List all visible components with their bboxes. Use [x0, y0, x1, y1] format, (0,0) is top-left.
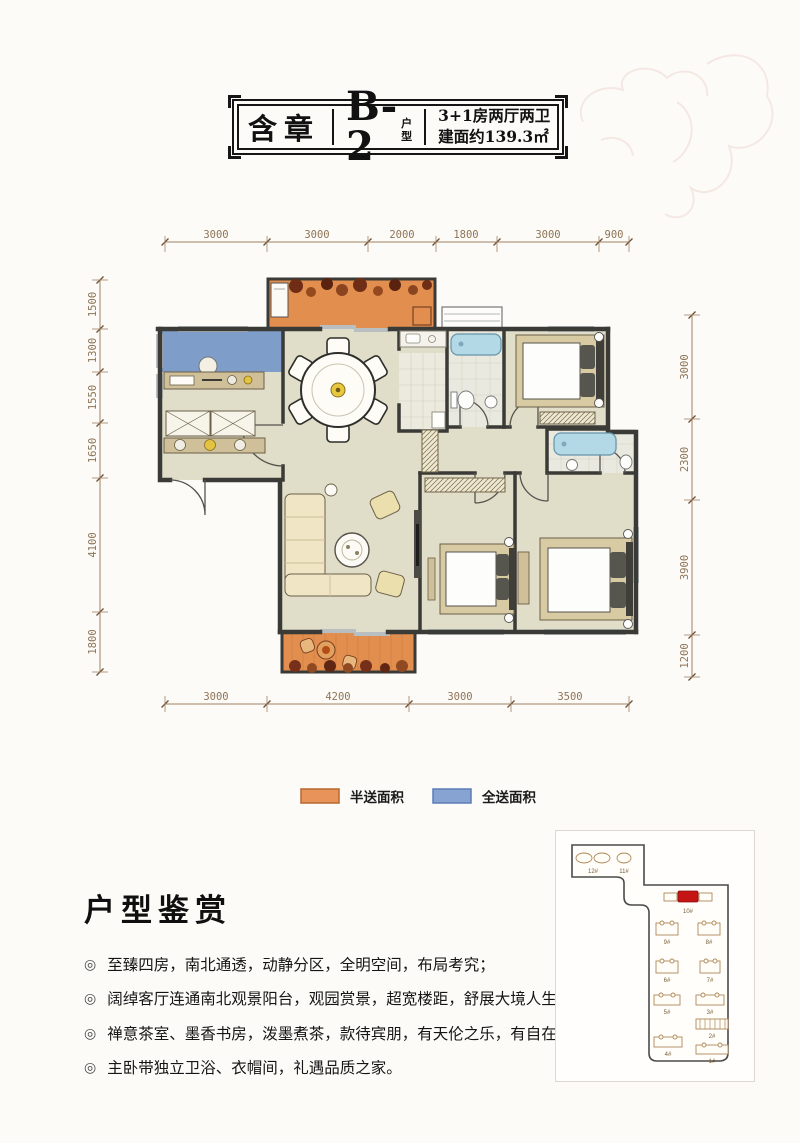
building-label: 12#: [588, 869, 599, 875]
legend-item-halfgift: 半送面积: [300, 786, 404, 806]
legend-label: 半送面积: [350, 786, 404, 806]
dim-bottom-3: 3000: [447, 691, 472, 703]
unit-specs: 3+1房两厅两卫 建面约139.3㎡: [438, 106, 550, 148]
title-block: 含章 B-2 户型 3+1房两厅两卫 建面约139.3㎡: [232, 99, 564, 155]
dim-top-5: 3000: [535, 229, 560, 241]
bullet-icon: ◎: [84, 990, 96, 1009]
dim-top-4: 1800: [453, 229, 478, 241]
selling-point: ◎ 阔绰客厅连通南北观景阳台，观园赏景，超宽楼距，舒展大境人生；: [84, 990, 584, 1009]
selling-points-list: ◎ 至臻四房，南北通透，动静分区，全明空间，布局考究； ◎ 阔绰客厅连通南北观景…: [84, 956, 584, 1079]
area-legend: 半送面积 全送面积: [300, 786, 536, 806]
frame-corner: [555, 146, 568, 159]
spec-line-2: 建面约139.3㎡: [438, 127, 550, 148]
building-label: 1#: [709, 1059, 716, 1065]
flyer-page: 含章 B-2 户型 3+1房两厅两卫 建面约139.3㎡: [0, 0, 800, 1143]
crane-watermark-decoration: [565, 12, 790, 227]
building-label: 6#: [664, 978, 671, 984]
unit-code-group: B-2 户型: [346, 87, 412, 167]
study-wardrobe: [166, 411, 255, 436]
building-label: 8#: [706, 940, 713, 946]
fullgift-swatch: [432, 788, 472, 804]
building-label: 11#: [619, 869, 629, 875]
floorplan-drawing: 3000 3000 2000 1800 3000 900 3000 4200 3…: [80, 222, 740, 732]
selling-point-text: 阔绰客厅连通南北观景阳台，观园赏景，超宽楼距，舒展大境人生；: [107, 990, 572, 1009]
building-label: 5#: [664, 1010, 671, 1016]
spec-line-1: 3+1房两厅两卫: [438, 106, 550, 127]
dim-left-3: 1550: [87, 385, 99, 410]
unit-suffix: 户型: [401, 118, 412, 143]
appreciation-section: 户型鉴赏 ◎ 至臻四房，南北通透，动静分区，全明空间，布局考究； ◎ 阔绰客厅连…: [84, 885, 584, 1094]
bullet-icon: ◎: [84, 1059, 96, 1078]
site-location-map: 12# 11# 10# 9# 8# 6# 7# 5# 3# 2# 4# 1#: [556, 831, 754, 1081]
building-label: 4#: [665, 1052, 672, 1058]
building-label: 3#: [707, 1010, 714, 1016]
study-fullgift-area: [161, 331, 283, 372]
divider: [424, 109, 426, 145]
selling-point-text: 禅意茶室、墨香书房，泼墨煮茶，款待宾朋，有天伦之乐，有自在生活；: [107, 1025, 603, 1044]
bedroom2-bed: [516, 333, 604, 408]
dim-left-1: 1500: [87, 292, 99, 317]
dim-right-2: 2300: [679, 447, 691, 472]
building-label: 9#: [664, 940, 671, 946]
dim-left-2: 1300: [87, 338, 99, 363]
unit-code: B-2: [346, 87, 397, 167]
dim-top-6: 900: [605, 229, 624, 241]
selling-point-text: 主卧带独立卫浴、衣帽间，礼遇品质之家。: [107, 1059, 402, 1078]
dim-bottom-2: 4200: [325, 691, 350, 703]
selling-point: ◎ 禅意茶室、墨香书房，泼墨煮茶，款待宾朋，有天伦之乐，有自在生活；: [84, 1025, 584, 1044]
selling-point-text: 至臻四房，南北通透，动静分区，全明空间，布局考究；: [107, 956, 495, 975]
section-heading: 户型鉴赏: [84, 885, 584, 930]
dim-top-2: 3000: [304, 229, 329, 241]
dim-bottom-1: 3000: [203, 691, 228, 703]
legend-item-fullgift: 全送面积: [432, 786, 536, 806]
dim-bottom-4: 3500: [557, 691, 582, 703]
bedroom3-bed: [428, 538, 515, 623]
building-label: 2#: [709, 1034, 716, 1040]
dim-right-1: 3000: [679, 354, 691, 379]
selling-point: ◎ 至臻四房，南北通透，动静分区，全明空间，布局考究；: [84, 956, 584, 975]
dim-left-6: 1800: [87, 629, 99, 654]
legend-label: 全送面积: [482, 786, 536, 806]
dim-top-3: 2000: [389, 229, 414, 241]
highlighted-building: [678, 891, 698, 902]
halfgift-swatch: [300, 788, 340, 804]
frame-corner: [555, 95, 568, 108]
bullet-icon: ◎: [84, 1025, 96, 1044]
dim-left-4: 1650: [87, 438, 99, 463]
bay-window: [442, 307, 502, 329]
project-name: 含章: [248, 106, 320, 148]
dim-right-4: 1200: [679, 643, 691, 668]
dim-top-1: 3000: [203, 229, 228, 241]
selling-point: ◎ 主卧带独立卫浴、衣帽间，礼遇品质之家。: [84, 1059, 584, 1078]
building-label: 7#: [707, 978, 714, 984]
divider: [332, 109, 334, 145]
frame-corner: [228, 146, 241, 159]
bullet-icon: ◎: [84, 956, 96, 975]
dim-right-3: 3900: [679, 555, 691, 580]
dim-left-5: 4100: [87, 532, 99, 557]
frame-corner: [228, 95, 241, 108]
building-label-highlighted: 10#: [683, 909, 694, 915]
